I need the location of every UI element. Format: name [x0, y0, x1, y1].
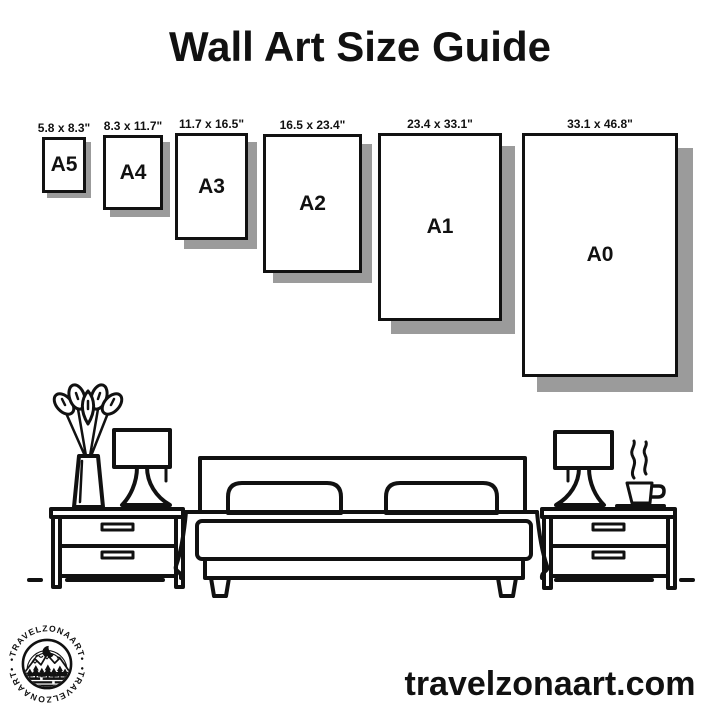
frame-dimensions-label: 16.5 x 23.4"	[280, 118, 346, 132]
bedroom-scene-illustration	[0, 378, 720, 600]
double-bed-icon	[176, 458, 548, 596]
frame-size-name: A1	[427, 215, 454, 239]
frame-dimensions-label: 23.4 x 33.1"	[407, 117, 473, 131]
table-lamp-left-icon	[114, 430, 170, 505]
size-frame-a1: 23.4 x 33.1"A1	[378, 133, 502, 321]
wall-art-size-guide-poster: Wall Art Size Guide 5.8 x 8.3"A58.3 x 11…	[0, 0, 720, 720]
size-frame-a0: 33.1 x 46.8"A0	[522, 133, 678, 377]
table-lamp-right-icon	[555, 432, 612, 505]
frame-size-name: A3	[198, 175, 225, 199]
frame-size-name: A5	[51, 153, 78, 177]
frame-size-name: A0	[587, 243, 614, 267]
nightstand-left-icon	[51, 509, 183, 587]
website-url: travelzonaart.com	[405, 667, 696, 701]
size-frame-a3: 11.7 x 16.5"A3	[175, 133, 248, 240]
frame-size-name: A4	[120, 161, 147, 185]
frame-dimensions-label: 8.3 x 11.7"	[104, 119, 162, 133]
size-frame-a4: 8.3 x 11.7"A4	[103, 135, 163, 210]
size-frame-a2: 16.5 x 23.4"A2	[263, 134, 362, 273]
frame-dimensions-label: 33.1 x 46.8"	[567, 117, 633, 131]
nightstand-right-icon	[542, 509, 675, 588]
frame-dimensions-label: 5.8 x 8.3"	[38, 121, 90, 135]
frame-dimensions-label: 11.7 x 16.5"	[179, 117, 244, 131]
size-frame-a5: 5.8 x 8.3"A5	[42, 137, 86, 193]
travelzonaart-logo: •TRAVELZONAART• •TRAVELZONAART•	[4, 621, 90, 707]
size-frames-row: 5.8 x 8.3"A58.3 x 11.7"A411.7 x 16.5"A31…	[0, 0, 720, 400]
coffee-cup-icon	[617, 441, 664, 506]
frame-size-name: A2	[299, 192, 326, 216]
